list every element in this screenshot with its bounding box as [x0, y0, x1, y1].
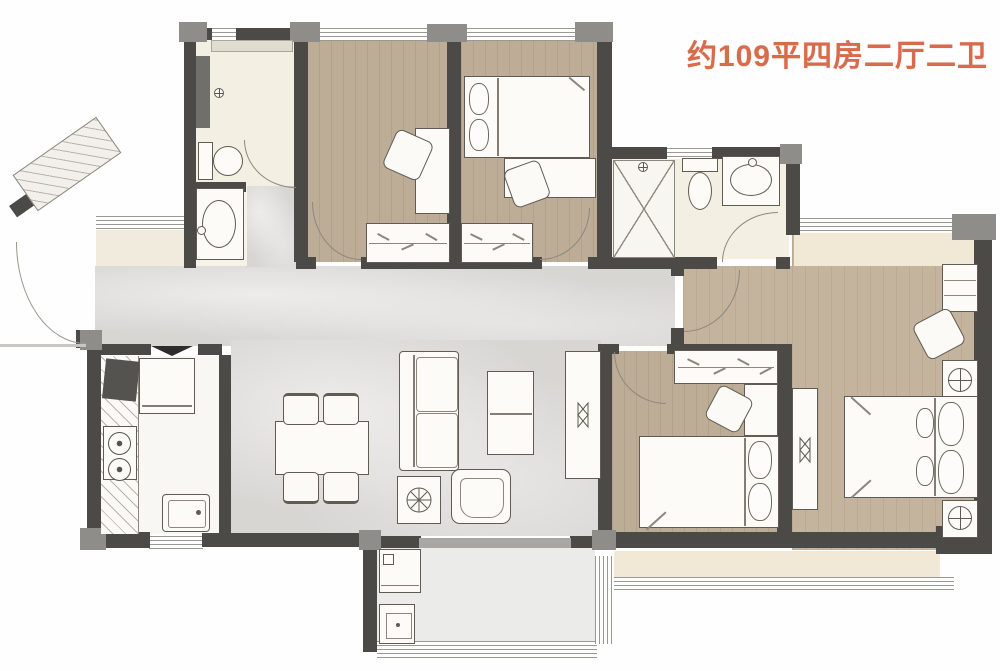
balcony-door-threshold — [419, 538, 571, 548]
wall-bedrooms-south-a — [296, 257, 316, 269]
entry-outer-sill — [0, 344, 86, 347]
plan-title: 约109平四房二厅二卫 — [687, 31, 988, 75]
coffee-table — [487, 371, 534, 455]
washer-knob — [383, 554, 394, 565]
column — [290, 22, 320, 42]
tv-icon — [798, 436, 812, 464]
column — [179, 22, 207, 42]
study-wardrobe — [366, 223, 450, 263]
kids-bedroom-window — [466, 28, 577, 41]
shoe-cabinet — [13, 117, 122, 212]
cabinet-line — [944, 295, 976, 296]
column — [592, 530, 616, 550]
toilet-tank — [682, 158, 718, 172]
bathroom1-window — [210, 28, 238, 40]
hanger-icon — [737, 358, 749, 365]
wall-balcony-west — [363, 536, 377, 652]
lamp-icon — [948, 506, 972, 530]
tv-icon — [576, 401, 590, 429]
dining-table — [275, 421, 369, 475]
wall-master-west-stub-top — [671, 266, 684, 276]
kitchen-bottom-window — [149, 536, 203, 549]
cushion — [916, 408, 934, 438]
kitchen-door-marker — [151, 346, 193, 356]
faucet-icon — [197, 226, 206, 235]
wardrobe-rail — [678, 367, 774, 368]
lamp-icon — [948, 368, 972, 392]
hanger-icon — [713, 367, 725, 374]
shower-faucet-icon — [214, 88, 224, 98]
master-cabinet — [942, 264, 978, 312]
fridge-line — [142, 405, 192, 407]
pillow — [748, 441, 772, 479]
pillow — [469, 83, 489, 115]
wall-bathroom1-east — [294, 36, 308, 262]
entry-door-arc — [16, 242, 86, 344]
wash-basin — [730, 164, 772, 196]
wall-bedroom3-master-divider — [777, 344, 792, 535]
bathroom1-shelf — [211, 40, 293, 52]
kitchen-appliance — [102, 358, 140, 401]
pillow — [469, 119, 489, 151]
blanket-fold — [569, 77, 585, 91]
hanger-icon — [377, 233, 389, 240]
wall-kids-bedroom-east — [597, 36, 612, 268]
master-top-bay-floor — [794, 233, 974, 266]
toilet-bowl — [688, 172, 712, 210]
pillow — [748, 483, 772, 521]
cabinet-line — [944, 280, 976, 281]
hanger-icon — [512, 233, 524, 240]
hanger-icon — [401, 243, 413, 250]
tv-console — [565, 351, 601, 479]
bottom-bay-floor — [614, 551, 940, 577]
wardrobe-rail — [369, 243, 446, 244]
wall-bathroom1-north-b — [236, 28, 292, 40]
hanger-icon — [425, 233, 437, 241]
sofa-cushion — [416, 413, 458, 468]
wall-bathroom1-west — [184, 28, 196, 268]
drain-icon — [196, 510, 201, 515]
wall-bathroom2-south-b — [776, 257, 790, 269]
bed-head-line — [934, 398, 936, 496]
drain-icon — [396, 623, 400, 627]
blanket-fold — [646, 511, 666, 530]
entry-threshold-lines — [96, 216, 186, 231]
mirror-cabinet — [196, 56, 210, 128]
plant-icon — [403, 484, 435, 516]
blanket-fold — [851, 479, 871, 498]
wall-living-south — [202, 533, 372, 547]
hallway-floor — [95, 266, 675, 346]
bed-head-line — [497, 78, 499, 156]
plant-stand — [397, 476, 441, 524]
sofa-back-line — [413, 355, 415, 467]
hanger-icon — [470, 233, 482, 240]
hanger-icon — [759, 367, 771, 374]
kids-wardrobe — [461, 223, 533, 263]
wall-bedrooms-south-low — [611, 532, 941, 548]
armchair — [451, 469, 511, 524]
blanket-fold — [851, 396, 871, 415]
column — [427, 24, 467, 42]
cushion — [916, 456, 934, 486]
wall-bathroom2-north-a — [611, 147, 667, 159]
hanger-icon — [687, 358, 699, 365]
burner-icon — [108, 432, 131, 455]
column — [575, 22, 613, 42]
wash-basin — [202, 200, 236, 248]
study-bedroom-window — [317, 28, 429, 41]
shower-head-icon — [638, 162, 648, 172]
washer-line — [381, 585, 419, 586]
column — [780, 144, 802, 164]
table-line — [490, 413, 532, 415]
pillow — [938, 402, 964, 446]
washing-machine — [379, 549, 421, 593]
kitchen-sink — [162, 494, 210, 532]
armchair-seat — [460, 478, 504, 518]
balcony-right-window — [595, 556, 612, 644]
wall-bedrooms-south-d — [588, 257, 600, 269]
wall-kitchen-north-b — [198, 344, 222, 355]
laundry-sink — [379, 604, 415, 644]
bed-head-line — [744, 438, 746, 526]
burner-icon — [108, 458, 131, 481]
wall-master-west-stub-bottom — [671, 328, 684, 348]
bottom-bay-window — [614, 577, 954, 593]
toilet-bowl — [213, 146, 243, 176]
wardrobe-rail — [464, 243, 530, 244]
sofa-cushion — [416, 357, 458, 412]
vanity-hall-floor — [245, 183, 297, 267]
toilet-tank — [198, 142, 213, 180]
wall-kitchen-east — [219, 355, 231, 536]
shower-enclosure — [613, 160, 675, 258]
column — [359, 530, 381, 550]
hanger-icon — [492, 243, 504, 250]
bedroom3-wardrobe — [674, 350, 778, 384]
refrigerator — [139, 358, 195, 414]
sofa — [399, 351, 459, 471]
dining-chair — [323, 472, 359, 504]
pillow — [938, 450, 964, 494]
floor-plan: 约109平四房二厅二卫 — [0, 0, 1000, 671]
wall-kitchen-west — [87, 344, 101, 544]
wall-bathroom2-south-a — [597, 257, 717, 269]
dining-chair — [323, 393, 359, 425]
column — [952, 214, 996, 240]
faucet-icon — [748, 158, 757, 167]
master-tv-cabinet — [792, 388, 818, 510]
dining-chair — [283, 393, 319, 425]
master-top-window — [793, 218, 957, 233]
dining-chair — [283, 472, 319, 504]
entry-mat-floor — [96, 230, 186, 268]
